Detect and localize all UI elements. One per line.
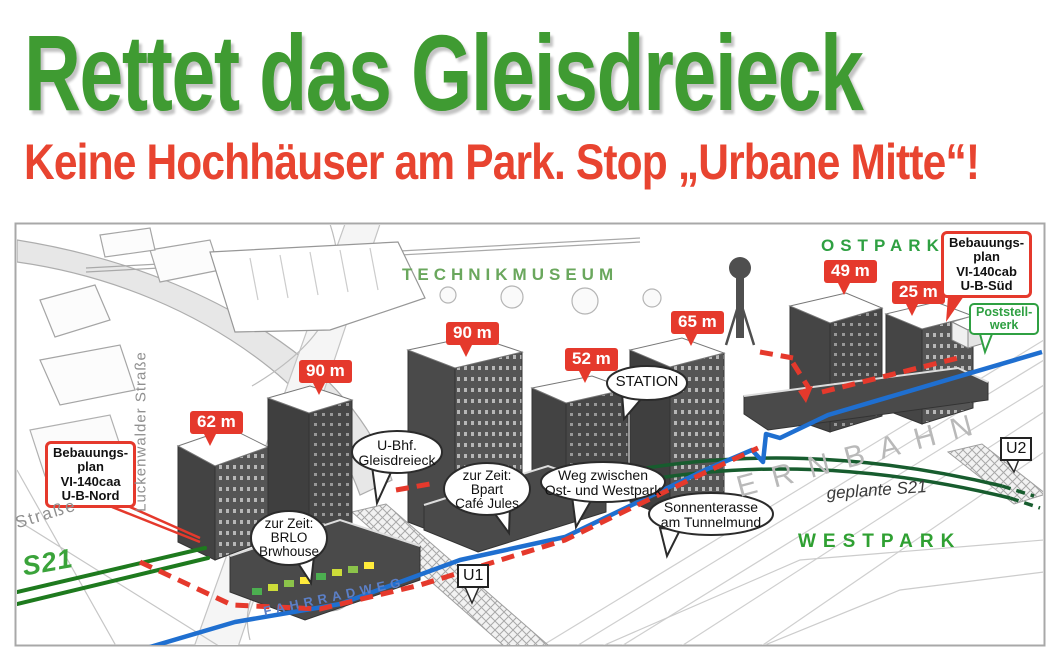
poststellwerk-line2: werk (976, 319, 1032, 332)
plan-box-sued-line3: VI-140cab (949, 265, 1024, 279)
area-label-westpark: WESTPARK (798, 531, 961, 553)
poster-title: Rettet das Gleisdreieck (24, 10, 862, 135)
bubble-bpart-line3: Café Jules (444, 497, 530, 511)
poststellwerk-box: Poststell- werk (969, 303, 1039, 335)
plan-box-sued-line4: U-B-Süd (949, 279, 1024, 293)
height-marker-52m: 52 m (565, 348, 618, 371)
bubble-sonnenterrasse-line2: am Tunnelmund (649, 515, 773, 530)
height-marker-25m: 25 m (892, 281, 945, 304)
bubble-brlo: zur Zeit: BRLO Brwhouse (251, 517, 327, 559)
plan-box-nord-line1: Bebauungs- (53, 446, 128, 460)
bubble-weg-line1: Weg zwischen (541, 468, 665, 483)
plan-box-nord-line2: plan (53, 460, 128, 474)
height-marker-90m-b: 90 m (446, 322, 499, 345)
area-label-ostpark: OSTPARK (821, 236, 945, 256)
bubble-bpart: zur Zeit: Bpart Café Jules (444, 469, 530, 511)
bubble-station: STATION (607, 374, 687, 390)
u1-badge: U1 (457, 564, 489, 588)
u2-badge: U2 (1000, 437, 1032, 461)
area-label-technikmuseum: TECHNIKMUSEUM (402, 265, 618, 285)
plan-box-nord: Bebauungs- plan VI-140caa U-B-Nord (45, 441, 136, 508)
bubble-brlo-line1: zur Zeit: (251, 517, 327, 531)
bubble-sonnenterrasse-line1: Sonnenterasse (649, 500, 773, 515)
street-label-luckenwalder: Luckenwalder Straße (133, 327, 150, 537)
bubble-sonnenterrasse: Sonnenterasse am Tunnelmund (649, 500, 773, 529)
plan-box-sued-line1: Bebauungs- (949, 236, 1024, 250)
plan-box-sued-line2: plan (949, 250, 1024, 264)
bubble-weg: Weg zwischen Ost- und Westpark (541, 468, 665, 497)
height-marker-90m-a: 90 m (299, 360, 352, 383)
bubble-ubhf-line1: U-Bhf. (352, 438, 442, 453)
height-marker-62m: 62 m (190, 411, 243, 434)
bubble-brlo-line2: BRLO (251, 531, 327, 545)
bubble-bpart-line2: Bpart (444, 483, 530, 497)
bubble-ubhf-line2: Gleisdreieck (352, 453, 442, 468)
bubble-ubhf-gleisdreieck: U-Bhf. Gleisdreieck (352, 438, 442, 467)
height-marker-49m: 49 m (824, 260, 877, 283)
height-marker-65m: 65 m (671, 311, 724, 334)
bubble-brlo-line3: Brwhouse (251, 545, 327, 559)
bubble-station-text: STATION (607, 374, 687, 390)
bubble-bpart-line1: zur Zeit: (444, 469, 530, 483)
poster-subtitle: Keine Hochhäuser am Park. Stop „Urbane M… (24, 133, 979, 191)
plan-box-sued: Bebauungs- plan VI-140cab U-B-Süd (941, 231, 1032, 298)
plan-box-nord-line3: VI-140caa (53, 475, 128, 489)
bubble-weg-line2: Ost- und Westpark (541, 483, 665, 498)
